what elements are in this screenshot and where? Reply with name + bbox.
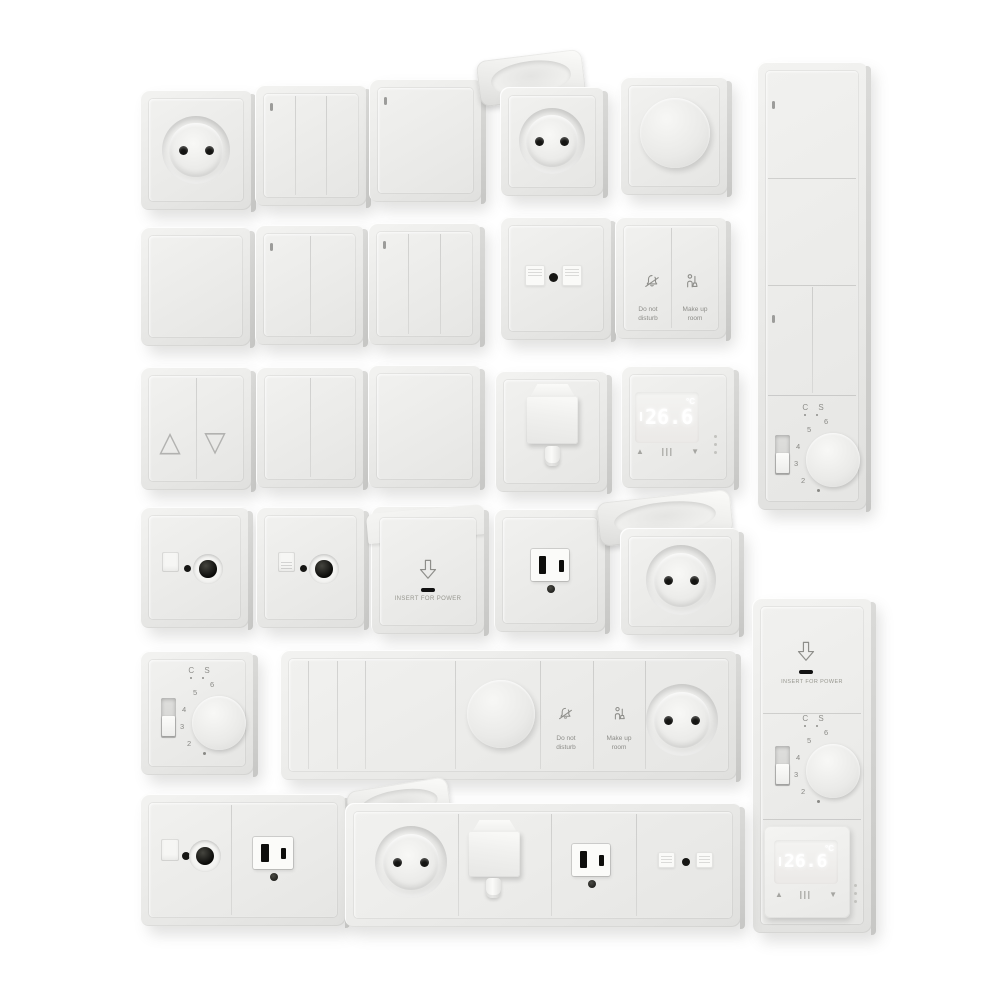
temp-up-button[interactable]: ▲ [636, 447, 644, 456]
socket-recess [654, 553, 709, 608]
dial-number: 3 [180, 722, 184, 731]
spout-front [526, 396, 578, 444]
temperature-dial[interactable] [806, 744, 860, 798]
insert-for-power-label: INSERT FOR POWER [380, 596, 476, 602]
cable-gland [486, 878, 501, 898]
data-jack [658, 852, 675, 868]
dimmer-face [629, 86, 719, 186]
schuko-socket [162, 116, 230, 184]
outlet-face [503, 518, 597, 623]
dimmer-plate [620, 77, 728, 195]
rocker-1[interactable] [766, 71, 858, 178]
dial-number: 2 [801, 476, 805, 485]
schuko-socket-plate [140, 90, 252, 210]
rocker-area[interactable] [265, 376, 355, 479]
rotary-thermostat: C S 6 5 4 3 2 [764, 401, 860, 503]
ground-hole [270, 873, 278, 881]
indicator-lens [384, 97, 387, 105]
indicator-lens [383, 241, 386, 249]
push-button-large[interactable] [149, 236, 242, 337]
outlet-face [149, 516, 240, 619]
outlet-face [509, 226, 603, 331]
combo-face [149, 803, 337, 917]
data-outlet-2-port [500, 217, 612, 340]
divider [231, 805, 232, 915]
pin-hole [420, 858, 429, 867]
card-face[interactable]: INSERT FOR POWER [380, 518, 476, 625]
divider [310, 378, 311, 477]
pin-hole [393, 858, 402, 867]
divider [763, 819, 861, 820]
mode-indicator [779, 857, 781, 866]
tv-sat-outlet [140, 507, 249, 628]
dial-scale-header: C S [802, 403, 827, 412]
multi-gang-panel: Do notdisturb Make uproom [280, 650, 737, 780]
service-face: Do notdisturb Make uproom [624, 226, 718, 330]
divider [440, 234, 441, 334]
dial-number: 4 [796, 753, 800, 762]
outlet-face [265, 516, 356, 619]
product-grid: Do notdisturb Make uproom △ ▽ [0, 0, 1000, 1000]
rocker-area[interactable] [377, 232, 472, 336]
rocker-2[interactable] [766, 178, 858, 285]
dial-number: 2 [187, 739, 191, 748]
dial-mark [203, 752, 206, 755]
temperature-dial[interactable] [806, 433, 860, 487]
dial-mark [817, 489, 820, 492]
data-jack [696, 852, 713, 868]
unit-readout: °C [686, 397, 695, 406]
menu-grid-icon[interactable] [800, 891, 812, 899]
mode-toggle[interactable] [775, 746, 790, 786]
indicator-lens [270, 103, 273, 111]
coax-connector [193, 554, 223, 584]
do-not-disturb-button[interactable] [624, 226, 718, 330]
panel-face [354, 812, 732, 918]
schuko-socket [375, 826, 447, 898]
temperature-dial[interactable] [192, 696, 246, 750]
us-socket-face [253, 837, 293, 869]
insert-for-power-label: INSERT FOR POWER [752, 679, 872, 685]
do-not-disturb-button[interactable] [540, 659, 593, 771]
outlet-face [504, 380, 599, 483]
us-outlet [494, 509, 606, 632]
thermostat-face: 26.6 °C ▲ ▼ [630, 375, 726, 479]
divider [310, 236, 311, 334]
divider [326, 96, 327, 195]
dimmer-knob[interactable] [640, 98, 710, 168]
coax-connector [309, 554, 339, 584]
socket-recess [383, 834, 439, 890]
divider [458, 814, 459, 916]
pin-hole [690, 576, 699, 585]
shutter-down-glyph: ▽ [197, 428, 233, 456]
divider [768, 395, 856, 396]
switch-3-gang [368, 223, 481, 345]
small-hole [300, 565, 307, 572]
schuko-socket-lid-plate [620, 528, 740, 635]
small-hole [184, 565, 191, 572]
socket-recess [526, 115, 578, 167]
hot-slot [539, 556, 546, 574]
thermostat-screen: 26.6 °C [774, 840, 838, 884]
rocker-area[interactable]: △ ▽ [149, 376, 243, 481]
dial-mark [817, 800, 820, 803]
neutral-slot [559, 560, 564, 572]
data-jack [525, 265, 545, 286]
mode-toggle[interactable] [775, 435, 790, 475]
coax-connector [189, 840, 221, 872]
schuko-socket [646, 684, 718, 756]
switch-1-gang [368, 365, 481, 488]
socket-recess [654, 692, 710, 748]
center-hole [682, 858, 690, 866]
panel-face: Do notdisturb Make uproom [289, 659, 728, 771]
shutter-up-glyph: △ [152, 428, 188, 456]
tv-sat-us-combo [140, 794, 346, 926]
neutral-slot [599, 855, 604, 866]
digital-thermostat: 26.6 °C ▲ ▼ [621, 366, 735, 488]
rotary-thermostat: C S 6 5 4 3 2 [764, 712, 860, 814]
pin-hole [205, 146, 214, 155]
hotel-service-buttons: Do notdisturb Make uproom [615, 217, 727, 339]
spout-front [468, 831, 520, 877]
tv-sat-outlet [256, 507, 365, 628]
thermostat-face: C S 6 5 4 3 2 [149, 660, 245, 766]
square-jack [162, 552, 179, 572]
dial-number: 3 [794, 459, 798, 468]
digital-thermostat-unit: 26.6 °C ▲ ▼ [764, 826, 850, 918]
key-card-holder: INSERT FOR POWER [371, 506, 485, 634]
temperature-readout: 26.6 [784, 851, 827, 872]
rocker-area[interactable] [264, 94, 358, 197]
card-slot[interactable] [421, 588, 435, 592]
switch-1-gang [369, 79, 482, 202]
dial-number: 6 [210, 680, 214, 689]
divider [455, 661, 456, 769]
schuko-socket [519, 108, 585, 174]
sensor-dots [714, 435, 717, 438]
menu-grid-icon[interactable] [662, 448, 674, 456]
switch-3-gang [255, 85, 367, 206]
shutter-switch: △ ▽ [140, 367, 252, 490]
rotary-thermostat-plate: C S 6 5 4 3 2 [140, 651, 254, 775]
rocker-area[interactable] [378, 88, 473, 193]
unit-readout: °C [825, 844, 834, 853]
tall-multi-panel-2: INSERT FOR POWER C S 6 5 4 3 2 26.6 °C ▲… [752, 598, 872, 933]
thermostat-screen: 26.6 °C [635, 392, 699, 443]
arrow-down-icon [417, 558, 439, 582]
divider [636, 814, 637, 916]
cable-gland [545, 446, 560, 466]
dial-scale-header: C S [802, 714, 827, 723]
panel-face: C S 6 5 4 3 2 [766, 71, 858, 501]
divider [408, 234, 409, 334]
dial-number: 5 [193, 688, 197, 697]
dimmer-knob[interactable] [467, 680, 535, 748]
arrow-down-icon [795, 640, 817, 664]
rotary-thermostat: C S 6 5 4 3 2 [150, 664, 246, 766]
schuko-socket-lid-plate [500, 87, 604, 196]
mode-indicator [640, 412, 642, 421]
dial-number: 6 [824, 728, 828, 737]
pin-hole [664, 576, 673, 585]
center-hole [549, 273, 558, 282]
dial-number: 4 [182, 705, 186, 714]
socket-recess [169, 123, 222, 176]
dial-number: 5 [807, 425, 811, 434]
pin-hole [535, 137, 544, 146]
neutral-slot [281, 848, 286, 859]
us-socket-face [572, 844, 610, 876]
socket-face [149, 99, 243, 201]
dial-number: 6 [824, 417, 828, 426]
socket-face [509, 96, 595, 187]
switch-2-gang [256, 367, 364, 488]
divider [551, 814, 552, 916]
rocker-area[interactable] [264, 234, 355, 336]
schuko-socket [646, 545, 716, 615]
switch-2-gang [255, 225, 364, 345]
square-jack [161, 839, 179, 861]
cable-outlet [495, 371, 608, 492]
sensor-dots [854, 884, 857, 887]
mode-toggle[interactable] [161, 698, 176, 738]
ground-hole [588, 880, 596, 888]
temp-down-button[interactable]: ▼ [829, 890, 837, 899]
ground-hole [547, 585, 555, 593]
dial-number: 3 [794, 770, 798, 779]
pin-hole [179, 146, 188, 155]
dial-number: 2 [801, 787, 805, 796]
square-jack [278, 552, 295, 572]
pin-hole [691, 716, 700, 725]
card-slot[interactable] [799, 670, 813, 674]
hot-slot [580, 851, 587, 868]
dial-scale-header: C S [188, 666, 213, 675]
divider [295, 96, 296, 195]
tall-multi-panel-1: C S 6 5 4 3 2 [757, 62, 867, 510]
data-jack [562, 265, 582, 286]
push-plate-blank [140, 227, 251, 346]
multi-gang-panel [345, 803, 741, 927]
pin-hole [560, 137, 569, 146]
temperature-readout: 26.6 [645, 405, 693, 429]
hot-slot [261, 844, 269, 862]
pin-hole [664, 716, 673, 725]
make-up-room-button[interactable] [593, 659, 645, 771]
rocker-2-gang[interactable] [766, 285, 858, 395]
rocker-group[interactable] [289, 659, 455, 771]
rocker-area[interactable] [377, 374, 472, 479]
dial-number: 5 [807, 736, 811, 745]
temp-up-button[interactable]: ▲ [775, 890, 783, 899]
socket-face [629, 537, 731, 626]
indicator-lens [270, 243, 273, 251]
dial-number: 4 [796, 442, 800, 451]
temp-down-button[interactable]: ▼ [691, 447, 699, 456]
